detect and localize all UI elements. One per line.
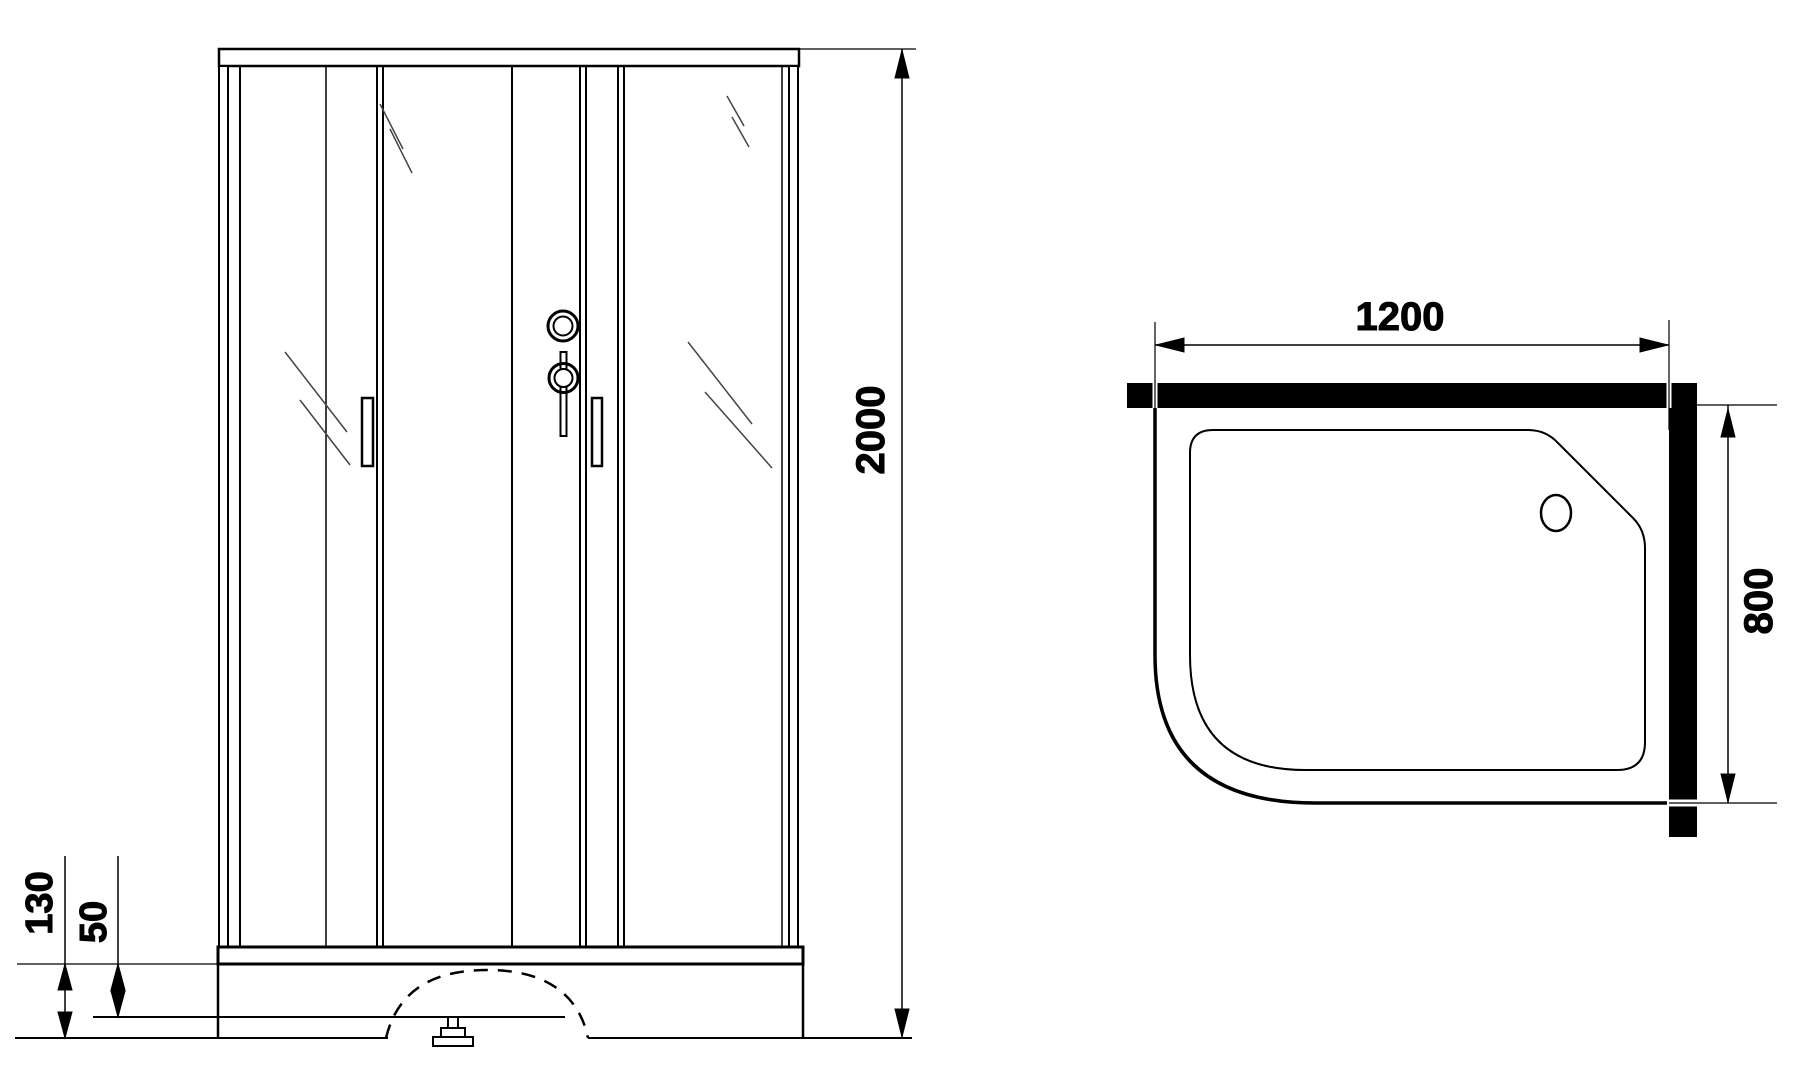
front-view [15, 49, 912, 1046]
dim-label-50: 50 [73, 901, 115, 943]
technical-drawing-page: 2000 130 50 [0, 0, 1800, 1069]
tray-foot [433, 1017, 473, 1046]
tray-top-band [218, 947, 803, 964]
right-door-handle [592, 398, 602, 466]
dim-label-130: 130 [19, 871, 61, 934]
dimension-1200: 1200 [1155, 295, 1669, 430]
glass-shine-marks [285, 96, 772, 468]
dim-label-1200: 1200 [1356, 295, 1445, 339]
right-frame-profile [789, 66, 798, 947]
back-wall-bar [1127, 383, 1697, 408]
glass-panel-lines [240, 66, 782, 947]
plan-tray-inner-outline [1190, 430, 1645, 770]
tray-access-arch [386, 970, 588, 1038]
ring-knob-lower [549, 352, 578, 436]
drain-hole [1541, 495, 1571, 531]
top-rail [219, 49, 799, 66]
plan-view [1127, 383, 1699, 837]
left-frame-profile [219, 66, 228, 947]
dimension-2000: 2000 [799, 49, 916, 1037]
tray-skirt [218, 964, 803, 1038]
dim-label-2000: 2000 [849, 386, 893, 475]
left-door-handle [362, 398, 373, 466]
ring-knob-upper [548, 311, 578, 341]
shower-cabin-drawing: 2000 130 50 [0, 0, 1800, 1069]
dimension-50: 50 [73, 856, 125, 1017]
dim-label-800: 800 [1737, 568, 1781, 635]
side-wall-bar [1669, 408, 1697, 837]
